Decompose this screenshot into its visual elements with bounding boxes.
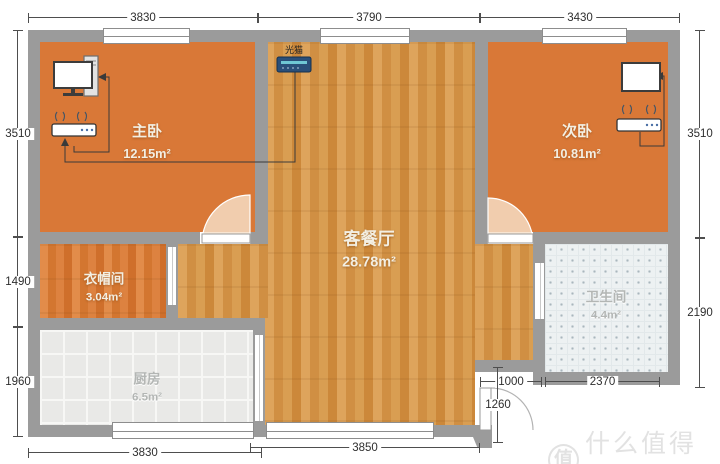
- dim-bottom-3830: 3830: [28, 452, 262, 453]
- room-name: 主卧: [132, 123, 162, 140]
- dim-entry-1000: 1000: [480, 381, 542, 382]
- dim-label: 3510: [684, 128, 716, 140]
- dim-top-3790: 3790: [258, 17, 480, 18]
- room-label-cloakroom: 衣帽间 3.04m²: [84, 269, 125, 306]
- room-name: 衣帽间: [84, 271, 125, 286]
- floor-plan: 光猫 主卧 12.15m² 客餐厅 28.78m² 次卧 10.81m² 衣帽间…: [0, 0, 720, 464]
- dim-bottom-3850: 3850: [250, 447, 480, 448]
- room-area: 28.78m²: [342, 252, 396, 274]
- room-area: 3.04m²: [84, 290, 125, 307]
- room-area: 10.81m²: [553, 144, 601, 163]
- room-label-second-bedroom: 次卧 10.81m²: [553, 121, 601, 163]
- master-door-swing: [202, 195, 250, 243]
- room-label-kitchen: 厨房 6.5m²: [132, 369, 162, 406]
- watermark: 值 什么值得买: [548, 424, 720, 464]
- dim-label: 1960: [2, 376, 34, 388]
- second-door-swing: [488, 198, 533, 243]
- modem-label: 光猫: [277, 43, 311, 56]
- dim-label: 1000: [495, 376, 527, 388]
- dim-label: 3790: [353, 12, 385, 24]
- room-name: 客餐厅: [344, 229, 395, 248]
- dim-label: 3850: [349, 442, 381, 454]
- tv-icon: [622, 63, 660, 91]
- room-label-bathroom: 卫生间 4.4m²: [586, 287, 627, 324]
- dim-left-3510: 3510: [17, 30, 18, 237]
- room-label-living-dining: 客餐厅 28.78m²: [342, 226, 396, 273]
- dim-right-2190: 2190: [699, 238, 700, 388]
- dim-left-1490: 1490: [17, 237, 18, 327]
- dim-bath-2370: 2370: [545, 381, 660, 382]
- room-name: 卫生间: [586, 289, 627, 304]
- dim-label: 3830: [127, 12, 159, 24]
- wifi-router-second-icon: [617, 105, 661, 131]
- room-area: 6.5m²: [132, 390, 162, 407]
- watermark-logo: 值: [548, 444, 579, 464]
- dim-left-1960: 1960: [17, 327, 18, 437]
- room-label-master-bedroom: 主卧 12.15m²: [123, 121, 171, 163]
- dim-label: 1260: [482, 399, 514, 411]
- dim-entry-1260: 1260: [497, 367, 498, 443]
- room-name: 厨房: [134, 371, 161, 386]
- watermark-text: 什么值得买: [585, 424, 720, 464]
- dim-right-3510: 3510: [699, 30, 700, 238]
- dim-label: 3510: [2, 128, 34, 140]
- dim-label: 2370: [587, 376, 619, 388]
- dim-label: 3830: [129, 447, 161, 459]
- wifi-router-master-icon: [52, 112, 96, 136]
- room-area: 4.4m²: [586, 308, 627, 325]
- desktop-computer-icon: [54, 56, 98, 96]
- dim-label: 1490: [2, 276, 34, 288]
- dim-label: 2190: [684, 307, 716, 319]
- room-area: 12.15m²: [123, 144, 171, 163]
- room-name: 次卧: [562, 123, 592, 140]
- optical-modem-icon: [277, 57, 311, 72]
- dim-top-3430: 3430: [480, 17, 680, 18]
- dim-label: 3430: [564, 12, 596, 24]
- dim-top-3830: 3830: [28, 17, 258, 18]
